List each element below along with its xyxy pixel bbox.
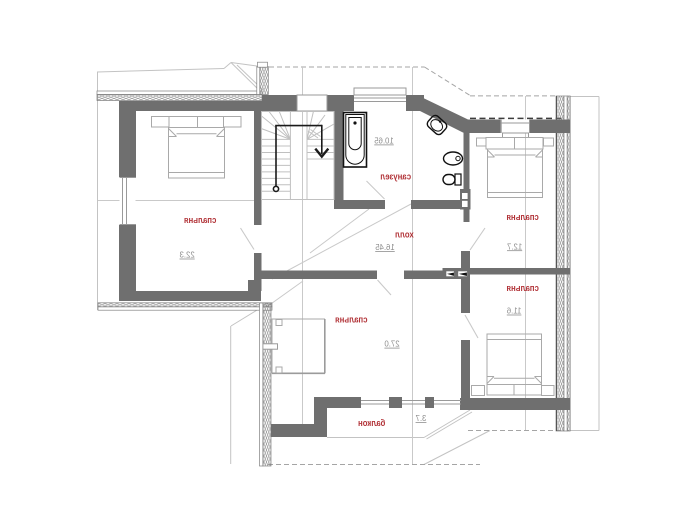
svg-text:16.45: 16.45	[375, 243, 395, 252]
svg-text:22.3: 22.3	[180, 251, 195, 260]
svg-text:12.7: 12.7	[507, 242, 522, 251]
svg-text:спальня: спальня	[506, 211, 538, 222]
svg-text:балкон: балкон	[358, 417, 385, 428]
svg-text:3.7: 3.7	[416, 414, 427, 423]
svg-text:27.0: 27.0	[384, 340, 400, 349]
svg-text:спальня: спальня	[335, 314, 367, 325]
svg-text:холл: холл	[395, 229, 414, 240]
svg-text:спальня: спальня	[506, 282, 538, 293]
svg-text:санузел: санузел	[380, 171, 411, 182]
svg-text:10.65: 10.65	[374, 137, 394, 146]
svg-text:спальня: спальня	[184, 214, 216, 225]
svg-text:11.6: 11.6	[507, 307, 522, 316]
